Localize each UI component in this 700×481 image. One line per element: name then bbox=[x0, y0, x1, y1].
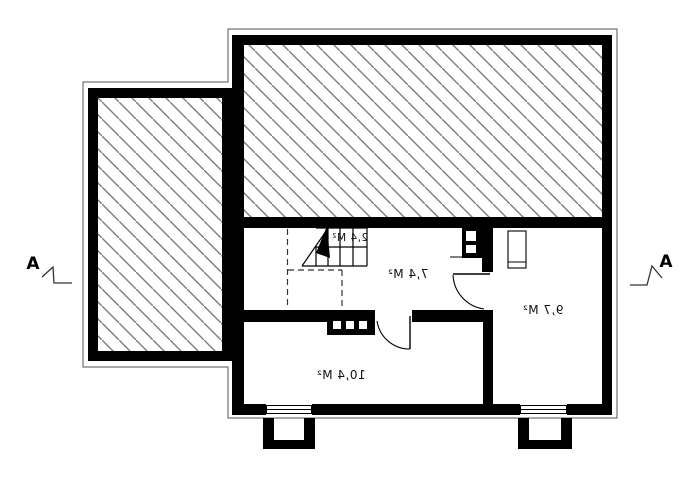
section-line-right bbox=[630, 266, 662, 285]
stairs-symbol bbox=[302, 224, 367, 266]
wall-bottom-seg2 bbox=[312, 404, 520, 415]
section-line-left bbox=[42, 267, 72, 283]
chimney-flue-2 bbox=[466, 245, 476, 253]
floor-plan-canvas: 2,4 M² 7,4 M² 9,7 M² 10,4 M² A A bbox=[0, 0, 700, 481]
annex-wall-bottom bbox=[88, 351, 244, 361]
well-right-bottom bbox=[518, 440, 572, 449]
room-area-label-right-room: 9,7 M² bbox=[522, 303, 563, 317]
door-swing-large-room bbox=[377, 321, 410, 349]
vent-grid-symbol bbox=[333, 321, 367, 329]
wall-top bbox=[232, 35, 612, 45]
section-marker-label-right: A bbox=[659, 252, 672, 272]
vent-opening-1 bbox=[333, 321, 341, 329]
furniture-symbol bbox=[508, 231, 526, 268]
wall-room-large-top-b bbox=[412, 310, 493, 322]
window-wells bbox=[263, 418, 572, 449]
door-swing-right-room bbox=[453, 275, 484, 309]
vent-opening-3 bbox=[359, 321, 367, 329]
room-area-label-stairs: 2,4 M² bbox=[332, 232, 368, 244]
wall-between-rooms bbox=[483, 310, 493, 404]
vent-opening-2 bbox=[346, 321, 354, 329]
wall-bottom-seg1 bbox=[232, 404, 266, 415]
wall-room-large-top-a bbox=[232, 310, 327, 322]
wall-stub-chimney bbox=[482, 258, 493, 272]
well-left-bottom bbox=[263, 440, 315, 449]
annex-wall-left bbox=[88, 88, 98, 361]
room-area-label-large-room: 10,4 M² bbox=[316, 368, 365, 382]
chimney-flue-1 bbox=[466, 231, 476, 241]
wall-bottom-seg3 bbox=[567, 404, 612, 415]
wall-inner-top bbox=[232, 217, 612, 228]
annex-wall-top bbox=[88, 88, 232, 98]
hatched-area-left bbox=[98, 98, 222, 351]
hatched-area-top bbox=[244, 45, 602, 217]
section-marker-label-left: A bbox=[26, 254, 39, 274]
room-area-label-hall: 7,4 M² bbox=[387, 267, 428, 281]
